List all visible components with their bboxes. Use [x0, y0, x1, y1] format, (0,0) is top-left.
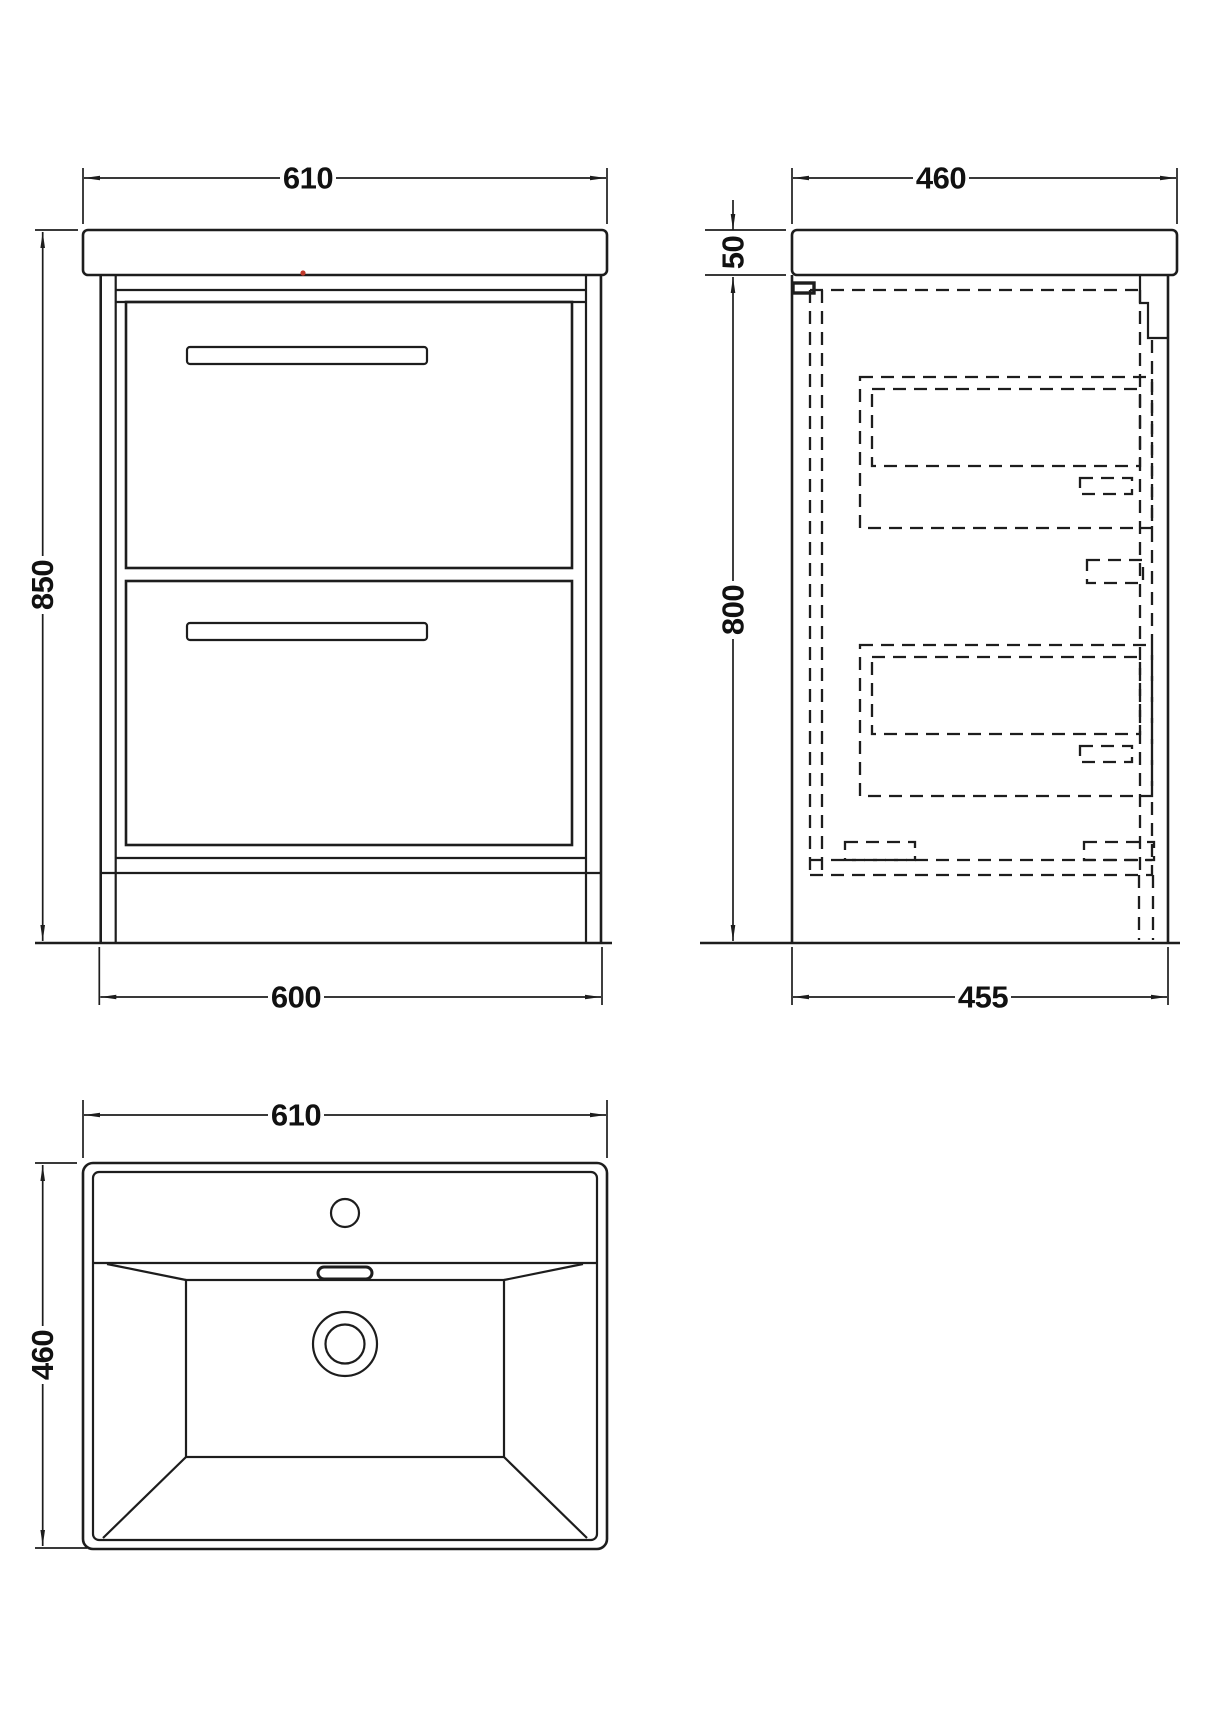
side-mid-bracket: [1087, 560, 1143, 583]
basin-waste-outer: [313, 1312, 377, 1376]
dim-side-height: 800: [716, 277, 751, 941]
basin-waste-inner: [326, 1325, 365, 1364]
dim-side-top-thickness-label: 50: [716, 236, 751, 269]
basin-slope-top-right: [504, 1264, 583, 1280]
side-front-foot: [845, 842, 915, 860]
dim-front-width-top-label: 610: [283, 161, 333, 196]
side-drawer-top-runner: [1080, 478, 1132, 494]
dim-plan-depth-label: 460: [25, 1330, 60, 1380]
front-countertop: [83, 230, 607, 275]
side-rear-foot: [1084, 842, 1154, 860]
front-drawer-top: [126, 302, 572, 568]
side-hidden-internals: [810, 290, 1154, 940]
front-drawer-top-handle: [187, 347, 427, 364]
side-drawer-top-box-inner: [872, 389, 1140, 466]
front-red-mark: [300, 270, 305, 275]
drawing-page: 610 850 600: [0, 0, 1214, 1718]
dim-front-width-bottom: 600: [99, 947, 602, 1015]
front-view: 610 850 600: [25, 161, 612, 1015]
side-countertop: [792, 230, 1177, 275]
basin-bowl-bottom: [186, 1280, 504, 1457]
side-drawer-bottom-box: [860, 645, 1152, 796]
basin-slope-top-left: [107, 1264, 186, 1280]
side-view: 460 50 800 455: [700, 161, 1180, 1015]
dim-plan-width-label: 610: [271, 1098, 321, 1133]
dim-front-height: 850: [25, 230, 78, 941]
front-cabinet: [101, 275, 601, 943]
side-rear-rail: [1140, 275, 1168, 338]
dim-side-top-thickness: 50: [705, 200, 786, 275]
drawing-canvas: 610 850 600: [0, 0, 1214, 1718]
basin-outer-rim: [83, 1163, 607, 1549]
dim-side-depth-bottom: 455: [792, 947, 1168, 1015]
front-drawer-bottom: [126, 581, 572, 845]
dim-front-height-label: 850: [25, 560, 60, 610]
dim-side-height-label: 800: [716, 585, 751, 635]
dim-side-depth-top: 460: [792, 161, 1177, 225]
side-drawer-bottom-runner: [1080, 746, 1132, 762]
dim-front-width-top: 610: [83, 161, 607, 225]
side-drawer-bottom-box-inner: [872, 657, 1140, 734]
dim-front-width-bottom-label: 600: [271, 980, 321, 1015]
dim-plan-width: 610: [83, 1098, 607, 1159]
basin-slope-bottom-right: [504, 1457, 587, 1538]
dim-side-depth-top-label: 460: [916, 161, 966, 196]
dim-side-depth-bottom-label: 455: [958, 980, 1008, 1015]
dim-plan-depth: 460: [25, 1163, 87, 1548]
basin-overflow-slot: [318, 1267, 372, 1279]
basin-slope-bottom-left: [103, 1457, 186, 1538]
front-drawer-bottom-handle: [187, 623, 427, 640]
side-drawer-top-box: [860, 377, 1152, 528]
basin-tap-hole: [331, 1199, 359, 1227]
plan-view: 610 460: [25, 1098, 607, 1550]
